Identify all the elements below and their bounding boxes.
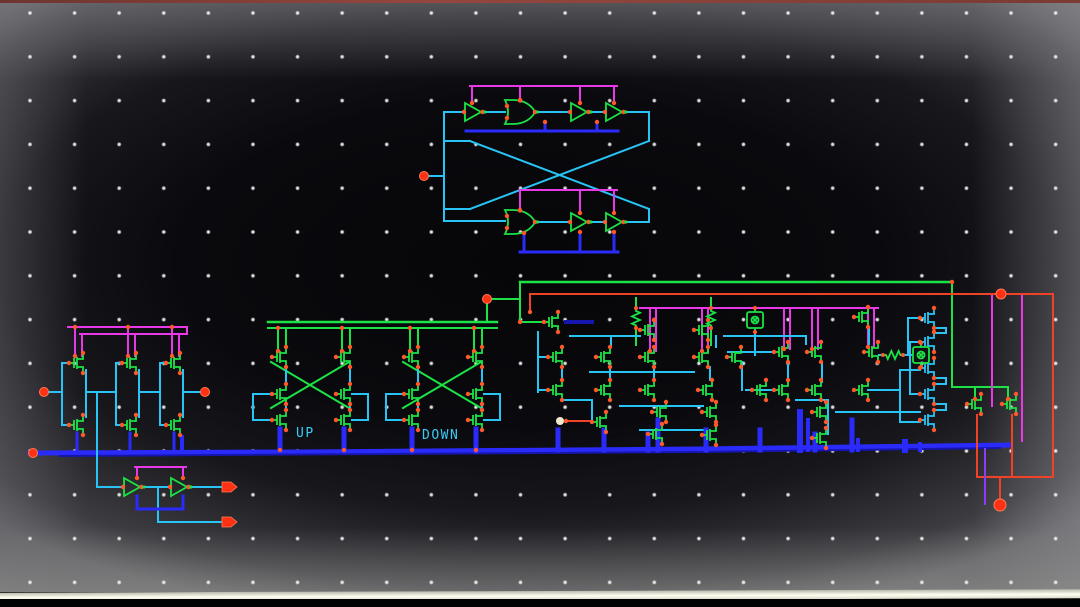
net-label: DOWN [422,428,459,443]
net-label: UP [296,426,315,441]
output-buffer-inverters[interactable] [97,467,237,527]
ground-supply-bus[interactable] [29,445,1011,458]
charge-pump-bias-network[interactable] [520,282,1053,511]
bezel-shadow [0,599,1080,607]
junction-dots [73,98,1010,480]
input-inverter-chain[interactable] [40,327,210,487]
up-down-switch-cells[interactable]: UPDOWN [253,282,520,451]
schematic-svg[interactable]: UPDOWN [0,0,1080,607]
sr-latch-circuit[interactable] [420,86,650,252]
monitor-photo: UPDOWN [0,0,1080,607]
